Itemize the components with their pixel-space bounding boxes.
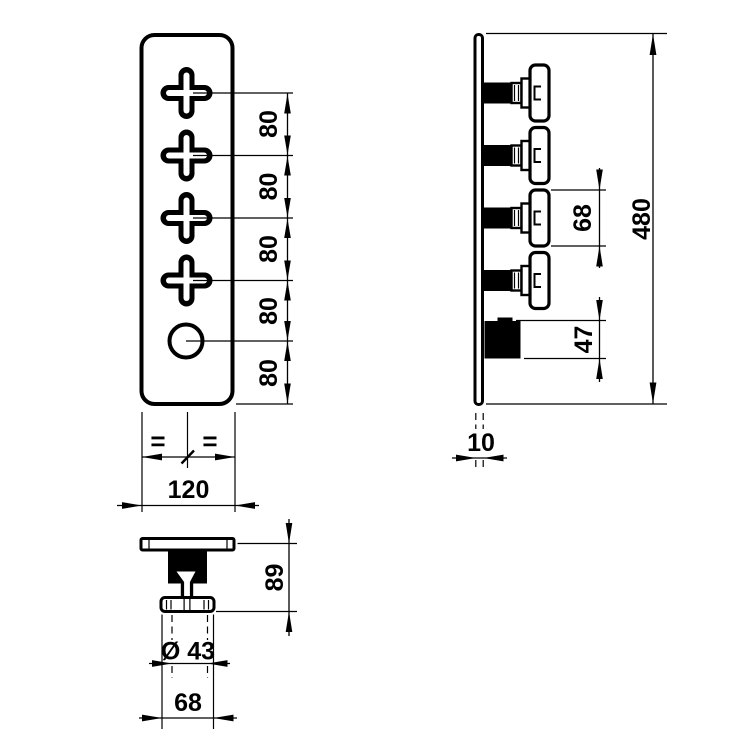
front-view: 80 80 80 80 80 = = 120 bbox=[117, 35, 293, 512]
dim-label-10: 10 bbox=[467, 429, 495, 457]
handle-profile-4 bbox=[484, 253, 549, 309]
dim-label-47: 47 bbox=[570, 326, 598, 354]
dimension-68-detail: 68 bbox=[139, 615, 237, 730]
equal-mark-left: = bbox=[150, 426, 165, 456]
dim-label-80-1: 80 bbox=[255, 110, 283, 138]
handle-profile-1 bbox=[484, 65, 549, 121]
dim-label-68-detail: 68 bbox=[174, 689, 202, 717]
handle-profile-2 bbox=[484, 128, 549, 184]
technical-drawing-canvas: 80 80 80 80 80 = = 120 bbox=[0, 0, 750, 750]
thermostat-knob-profile bbox=[485, 318, 521, 359]
dim-label-80-5: 80 bbox=[255, 359, 283, 387]
dim-label-80-4: 80 bbox=[255, 297, 283, 325]
dimension-width-group: = = 120 bbox=[117, 412, 259, 512]
dimension-47-side: 47 bbox=[516, 297, 606, 382]
handle-detail-view: 89 Ø 43 68 bbox=[139, 519, 297, 729]
valve-body bbox=[168, 551, 207, 598]
side-view: 68 47 480 10 bbox=[452, 34, 667, 472]
dim-label-120: 120 bbox=[168, 476, 210, 504]
handle-profile-3 bbox=[484, 190, 549, 246]
equal-mark-right: = bbox=[202, 426, 217, 456]
dim-label-89: 89 bbox=[261, 564, 289, 592]
dimension-spacing-chain: 80 80 80 80 80 bbox=[255, 93, 291, 404]
dimension-89: 89 bbox=[216, 519, 297, 636]
dim-label-80-2: 80 bbox=[255, 173, 283, 201]
dimension-10: 10 bbox=[452, 413, 507, 471]
dimension-68-side: 68 bbox=[551, 168, 606, 268]
handle-knob-end bbox=[161, 598, 214, 612]
dim-label-480: 480 bbox=[628, 198, 656, 240]
dim-label-68-side: 68 bbox=[569, 204, 597, 232]
flange-profile bbox=[141, 539, 234, 551]
dimension-diameter-43: Ø 43 bbox=[149, 615, 230, 678]
dim-label-diameter-43: Ø 43 bbox=[161, 638, 215, 666]
faceplate-profile bbox=[475, 35, 483, 405]
dim-label-80-3: 80 bbox=[255, 235, 283, 263]
